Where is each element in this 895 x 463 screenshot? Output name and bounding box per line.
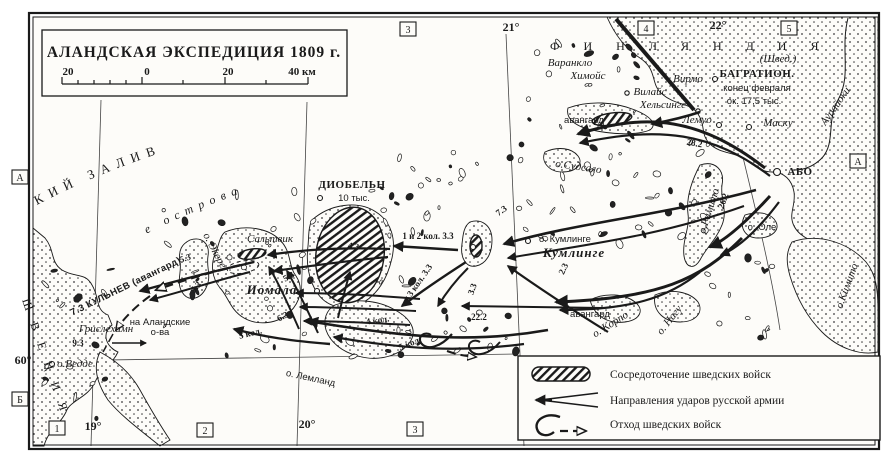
- svg-text:1: 1: [55, 424, 60, 435]
- islet: [546, 71, 552, 77]
- map-label: Вирмо: [673, 73, 703, 85]
- map-label: Варанкло: [548, 57, 593, 69]
- graticule-degree-label: 19°: [85, 419, 102, 433]
- map-label: авангард: [570, 309, 610, 320]
- islet: [769, 264, 775, 268]
- islet: [273, 344, 275, 349]
- map-label: о. Оле: [748, 222, 777, 233]
- map-label: Химойс: [569, 70, 605, 82]
- map-label: Иомала: [246, 282, 298, 297]
- sheet-grid-marker: А: [850, 154, 866, 168]
- islet: [446, 314, 448, 321]
- svg-text:4: 4: [644, 24, 649, 35]
- aland-expedition-1809-map: БОТНИЧЕСКИЙ ЗАЛИВ Аландские острова ФИНЛ…: [0, 0, 895, 463]
- islet: [728, 292, 730, 297]
- map-label: о. Кумлинге: [539, 234, 591, 245]
- svg-text:А: А: [854, 157, 862, 168]
- islet: [617, 67, 620, 72]
- map-label: Маску: [762, 117, 793, 129]
- islet: [516, 206, 522, 211]
- sheet-grid-marker: Б: [12, 392, 28, 406]
- islet: [380, 207, 387, 213]
- islet: [645, 197, 654, 199]
- legend: Сосредоточение шведских войск Направлени…: [518, 356, 880, 440]
- map-label: авангард: [564, 115, 604, 126]
- svg-text:Б: Б: [17, 395, 23, 406]
- map-label: 9.3: [72, 338, 84, 348]
- islet: [437, 179, 441, 182]
- svg-text:3: 3: [406, 25, 411, 36]
- svg-text:3: 3: [413, 425, 418, 436]
- svg-text:5: 5: [787, 24, 792, 35]
- svg-text:2: 2: [203, 426, 208, 437]
- sheet-grid-marker: 4: [638, 21, 654, 35]
- sheet-grid-marker: 5: [781, 21, 797, 35]
- legend-item-retreat: Отход шведских войск: [610, 419, 722, 431]
- islet: [162, 208, 166, 212]
- sheet-grid-marker: 2: [197, 423, 213, 437]
- map-label: Вилайс: [633, 86, 666, 98]
- islet: [505, 337, 508, 340]
- map-label: Грислехамн: [78, 323, 134, 335]
- sheet-grid-marker: А: [12, 170, 28, 184]
- finland-note-label: (Швед.): [760, 53, 797, 65]
- graticule-degree-label: 20°: [299, 417, 316, 431]
- map-label: о.Ведде: [57, 358, 93, 370]
- map-label: конец февраля: [723, 83, 791, 94]
- islet: [609, 154, 613, 161]
- islet: [291, 187, 297, 196]
- finland-label: ФИНЛЯНДИЯ: [550, 39, 842, 53]
- islet: [264, 297, 268, 300]
- map-label: 10 тыс.: [338, 193, 370, 204]
- map-label: Хельсинге: [639, 99, 686, 111]
- graticule-degree-label: 22°: [710, 18, 727, 32]
- map-label: Лемуо: [681, 114, 712, 126]
- map-title: АЛАНДСКАЯ ЭКСПЕДИЦИЯ 1809 г.: [47, 44, 341, 61]
- islet: [745, 254, 752, 263]
- map-label: ДИОБЕЛЬН: [318, 179, 385, 191]
- map-label: 1 и 2 кол. 3.3: [402, 231, 454, 241]
- title-box: АЛАНДСКАЯ ЭКСПЕДИЦИЯ 1809 г. 20 0 20 40 …: [42, 30, 347, 96]
- map-label: АБО: [787, 166, 812, 178]
- scale-label-20-right: 20: [223, 66, 235, 78]
- islet: [635, 225, 642, 231]
- sheet-grid-marker: 3: [407, 422, 423, 436]
- legend-symbol-concentration: [532, 367, 590, 381]
- abo-marker: [774, 169, 781, 176]
- historical-map-page: БОТНИЧЕСКИЙ ЗАЛИВ Аландские острова ФИНЛ…: [0, 0, 895, 463]
- map-label: ок. 17,5 тыс.: [727, 96, 781, 107]
- islet: [610, 201, 615, 207]
- islet: [449, 165, 452, 169]
- legend-item-concentration: Сосредоточение шведских войск: [610, 369, 771, 381]
- islet: [507, 154, 514, 161]
- islet: [442, 308, 448, 314]
- islet: [755, 261, 761, 264]
- islet: [745, 316, 750, 320]
- scale-label-40km: 40 км: [288, 66, 316, 78]
- svg-text:А: А: [16, 173, 24, 184]
- sheet-grid-marker: 3: [400, 22, 416, 36]
- map-label: БАГРАТИОН.: [719, 68, 794, 80]
- islet: [451, 150, 456, 155]
- map-label: 22.2: [471, 312, 487, 322]
- legend-item-strikes: Направления ударов русской армии: [610, 395, 784, 407]
- graticule-degree-label: 21°: [503, 20, 520, 34]
- map-label: 4.3: [347, 240, 360, 252]
- map-label: Сальтвик: [247, 233, 294, 245]
- scale-label-20-left: 20: [63, 66, 75, 78]
- sheet-grid-marker: 1: [49, 421, 65, 435]
- islet: [606, 170, 609, 176]
- map-label: Кумлинге: [542, 245, 605, 260]
- map-label: о-ва: [151, 327, 170, 338]
- islet: [438, 206, 440, 210]
- scale-label-0: 0: [144, 66, 150, 78]
